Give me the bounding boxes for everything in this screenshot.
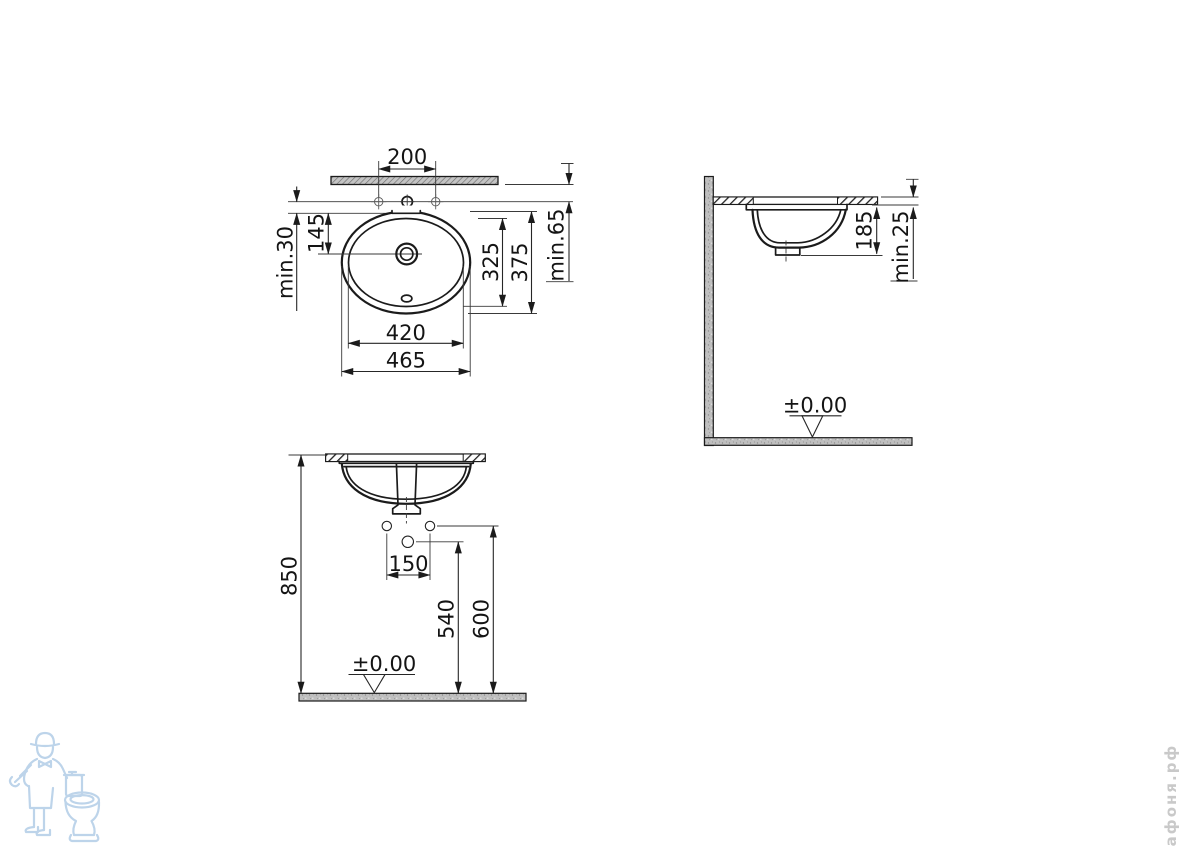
dim-counter-thickness-min: min.25 (872, 179, 919, 284)
front-supply-hole-left (382, 521, 391, 530)
watermark-plumber-logo (10, 733, 99, 841)
dim-label-inner-depth: 325 (479, 242, 503, 282)
front-floor-bar (299, 693, 526, 701)
front-drain-outlet (402, 536, 413, 547)
plan-side-tap-hole-left (371, 194, 386, 209)
datum-triangle-side (802, 416, 823, 437)
dim-label-supply-spacing: 150 (388, 552, 428, 576)
datum-label-side: ±0.00 (783, 394, 847, 418)
dim-label-supply-height: 600 (470, 599, 494, 639)
dim-label-inner-width: 420 (386, 321, 426, 345)
side-drain-sump (776, 248, 800, 255)
dim-tap-spacing: 200 (379, 145, 436, 197)
dim-label-counter-height: 850 (278, 556, 302, 596)
dim-counter-height: 850 (278, 455, 327, 693)
dim-label-rim-gap-min: min.30 (274, 226, 298, 299)
dim-rim-gap-min: min.30 (274, 187, 392, 312)
side-floor-datum: ±0.00 (783, 394, 847, 438)
side-basin-section (746, 204, 847, 262)
plan-overflow-hole (402, 295, 412, 302)
front-basin-outline (339, 462, 473, 524)
dim-label-edge-to-tap-min: min.65 (545, 209, 569, 282)
dim-label-drain-height: 540 (435, 599, 459, 639)
side-floor-bar (705, 438, 913, 446)
datum-triangle-front (364, 675, 386, 693)
side-view: min.25 185 ±0.00 (705, 177, 919, 446)
technical-drawing-canvas: 200 min.30 145 (0, 0, 1200, 849)
dim-label-outer-width: 465 (386, 349, 426, 373)
plumber-icon (10, 733, 67, 835)
plan-view: 200 min.30 145 (274, 145, 574, 377)
dim-label-bowl-height: 185 (853, 210, 877, 250)
front-supply-hole-right (425, 521, 434, 530)
datum-label-front: ±0.00 (352, 652, 416, 676)
front-floor-datum: ±0.00 (349, 652, 417, 693)
dim-supply-spacing: 150 (387, 534, 430, 581)
plan-drain-hole (318, 244, 422, 265)
front-view: 850 150 540 600 ±0.00 (278, 454, 527, 701)
watermark-brand-text: афоня.рф (1162, 744, 1180, 847)
plan-side-tap-hole-right (428, 194, 443, 209)
side-counter-bar (713, 197, 877, 204)
front-counter-bar (326, 454, 486, 462)
side-wall-bar (705, 177, 714, 446)
toilet-icon (64, 772, 99, 841)
dim-label-rim-to-drain: 145 (305, 213, 329, 253)
dim-label-outer-depth: 375 (508, 242, 532, 282)
plan-counter-edge-bar (331, 177, 498, 185)
dim-label-counter-thickness-min: min.25 (889, 211, 913, 284)
dim-label-tap-spacing: 200 (387, 145, 427, 169)
dim-rim-to-drain: 145 (305, 213, 329, 254)
dim-bowl-height: 185 (801, 208, 883, 256)
